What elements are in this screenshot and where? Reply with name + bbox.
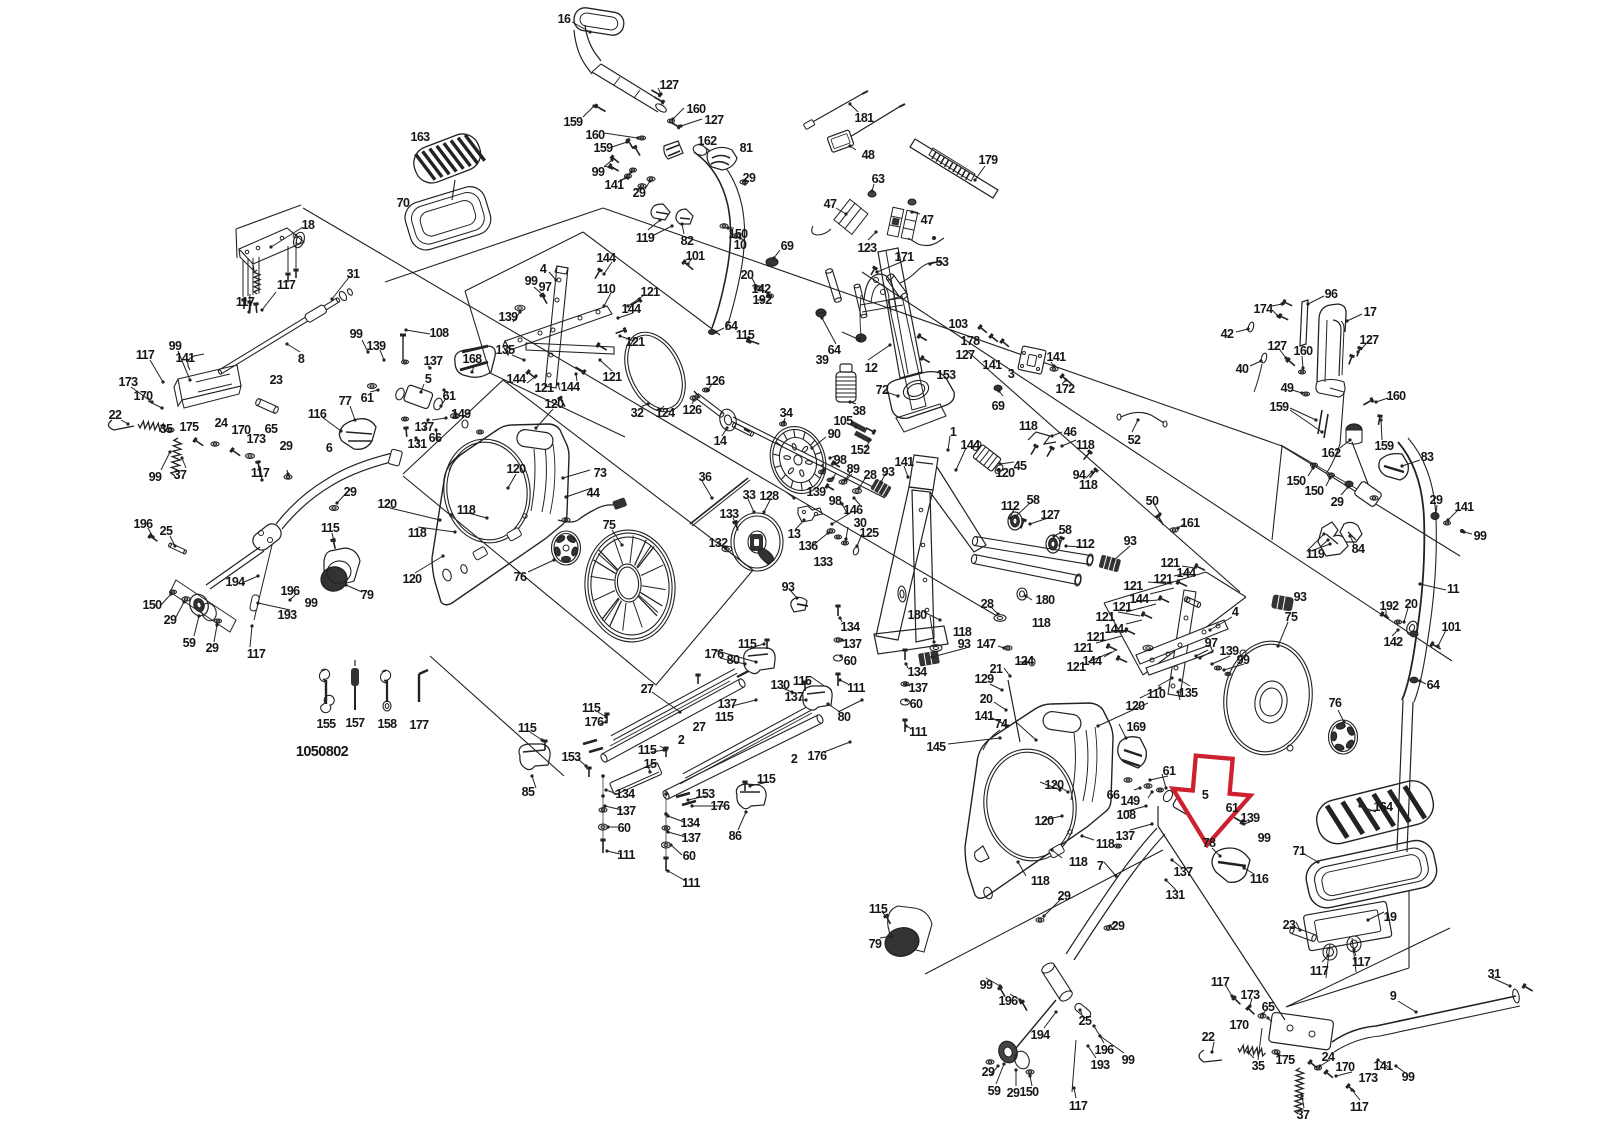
svg-text:115: 115 <box>321 521 340 535</box>
svg-text:120: 120 <box>1034 814 1054 828</box>
svg-text:115: 115 <box>638 743 657 757</box>
svg-text:39: 39 <box>816 353 829 367</box>
svg-text:137: 137 <box>1173 865 1193 879</box>
svg-text:127: 127 <box>659 78 679 92</box>
svg-text:141: 141 <box>982 358 1002 372</box>
svg-text:159: 159 <box>593 141 613 155</box>
svg-text:66: 66 <box>429 431 442 445</box>
svg-text:121: 121 <box>1073 641 1093 655</box>
svg-text:98: 98 <box>834 453 847 467</box>
svg-text:124: 124 <box>1014 654 1034 668</box>
svg-text:149: 149 <box>1120 794 1140 808</box>
svg-text:121: 121 <box>602 370 622 384</box>
svg-text:99: 99 <box>525 274 538 288</box>
svg-text:24: 24 <box>215 416 228 430</box>
svg-text:36: 36 <box>699 470 712 484</box>
svg-text:117: 117 <box>1352 955 1371 969</box>
svg-text:58: 58 <box>1059 523 1072 537</box>
svg-text:18: 18 <box>302 218 315 232</box>
svg-text:32: 32 <box>631 406 644 420</box>
svg-text:118: 118 <box>1031 874 1050 888</box>
svg-text:132: 132 <box>708 536 728 550</box>
svg-text:29: 29 <box>1112 919 1125 933</box>
svg-text:176: 176 <box>704 647 724 661</box>
svg-text:72: 72 <box>876 383 889 397</box>
svg-text:121: 121 <box>1066 660 1086 674</box>
svg-text:97: 97 <box>1205 636 1218 650</box>
svg-text:81: 81 <box>740 141 753 155</box>
svg-text:101: 101 <box>1441 620 1461 634</box>
svg-text:16: 16 <box>558 12 571 26</box>
svg-text:137: 137 <box>681 831 701 845</box>
svg-text:61: 61 <box>361 391 374 405</box>
svg-text:144: 144 <box>960 438 980 452</box>
svg-text:22: 22 <box>109 408 122 422</box>
svg-text:176: 176 <box>710 799 730 813</box>
svg-text:29: 29 <box>982 1065 995 1079</box>
svg-text:20: 20 <box>980 692 993 706</box>
svg-text:118: 118 <box>457 503 476 517</box>
svg-text:123: 123 <box>857 241 877 255</box>
svg-text:118: 118 <box>1079 478 1098 492</box>
svg-text:69: 69 <box>781 239 794 253</box>
svg-text:20: 20 <box>741 268 754 282</box>
svg-text:96: 96 <box>1325 287 1338 301</box>
svg-text:176: 176 <box>807 749 827 763</box>
svg-text:163: 163 <box>410 130 430 144</box>
svg-text:137: 137 <box>1115 829 1135 843</box>
svg-text:112: 112 <box>1076 537 1095 551</box>
svg-text:117: 117 <box>236 295 255 309</box>
svg-text:99: 99 <box>592 165 605 179</box>
svg-text:172: 172 <box>1055 382 1075 396</box>
svg-text:173: 173 <box>246 432 266 446</box>
svg-text:76: 76 <box>1329 696 1342 710</box>
svg-text:118: 118 <box>1076 438 1095 452</box>
svg-text:144: 144 <box>506 372 526 386</box>
svg-text:157: 157 <box>345 716 365 730</box>
svg-text:29: 29 <box>633 186 646 200</box>
svg-text:28: 28 <box>981 597 994 611</box>
svg-text:135: 135 <box>1178 686 1198 700</box>
svg-text:31: 31 <box>1488 967 1501 981</box>
svg-text:75: 75 <box>1285 610 1298 624</box>
svg-text:149: 149 <box>451 407 471 421</box>
svg-text:78: 78 <box>1203 836 1216 850</box>
svg-text:77: 77 <box>339 394 352 408</box>
svg-text:93: 93 <box>1294 590 1307 604</box>
svg-text:50: 50 <box>1146 494 1159 508</box>
svg-text:60: 60 <box>618 821 631 835</box>
svg-text:27: 27 <box>641 682 654 696</box>
svg-text:111: 111 <box>617 848 635 862</box>
svg-text:53: 53 <box>936 255 949 269</box>
svg-text:127: 127 <box>1359 333 1379 347</box>
svg-text:8: 8 <box>298 352 305 366</box>
svg-text:59: 59 <box>183 636 196 650</box>
svg-text:133: 133 <box>719 507 739 521</box>
svg-text:75: 75 <box>603 518 616 532</box>
svg-text:126: 126 <box>682 403 702 417</box>
svg-text:173: 173 <box>1358 1071 1378 1085</box>
svg-text:153: 153 <box>561 750 581 764</box>
svg-text:144: 144 <box>1176 566 1196 580</box>
svg-text:117: 117 <box>277 278 296 292</box>
svg-text:85: 85 <box>522 785 535 799</box>
svg-text:144: 144 <box>1104 622 1124 636</box>
svg-text:47: 47 <box>824 197 837 211</box>
svg-text:79: 79 <box>869 937 882 951</box>
svg-text:101: 101 <box>685 249 705 263</box>
svg-text:115: 115 <box>518 721 537 735</box>
svg-text:99: 99 <box>149 470 162 484</box>
svg-text:118: 118 <box>1096 837 1115 851</box>
svg-text:79: 79 <box>361 588 374 602</box>
svg-text:34: 34 <box>780 406 793 420</box>
svg-text:4: 4 <box>1232 605 1239 619</box>
svg-text:61: 61 <box>443 389 456 403</box>
svg-text:25: 25 <box>160 524 173 538</box>
svg-text:93: 93 <box>1124 534 1137 548</box>
svg-text:153: 153 <box>936 368 956 382</box>
svg-text:15: 15 <box>644 757 657 771</box>
svg-text:120: 120 <box>1125 699 1145 713</box>
svg-text:60: 60 <box>683 849 696 863</box>
svg-text:49: 49 <box>1281 381 1294 395</box>
svg-text:142: 142 <box>1383 635 1403 649</box>
svg-text:22: 22 <box>1202 1030 1215 1044</box>
svg-text:48: 48 <box>862 148 875 162</box>
svg-text:29: 29 <box>1331 495 1344 509</box>
svg-text:20: 20 <box>1405 597 1418 611</box>
svg-text:119: 119 <box>636 231 655 245</box>
svg-text:141: 141 <box>894 455 914 469</box>
svg-text:133: 133 <box>813 555 833 569</box>
svg-text:177: 177 <box>409 718 429 732</box>
svg-text:120: 120 <box>995 466 1015 480</box>
svg-text:194: 194 <box>1030 1028 1050 1042</box>
svg-text:99: 99 <box>305 596 318 610</box>
svg-text:60: 60 <box>910 697 923 711</box>
svg-text:117: 117 <box>1310 964 1329 978</box>
svg-text:23: 23 <box>270 373 283 387</box>
svg-text:170: 170 <box>1229 1018 1249 1032</box>
svg-text:121: 121 <box>625 335 645 349</box>
svg-text:137: 137 <box>842 637 862 651</box>
svg-text:120: 120 <box>1044 778 1064 792</box>
svg-text:179: 179 <box>978 153 998 167</box>
svg-text:129: 129 <box>974 672 994 686</box>
svg-text:141: 141 <box>1046 350 1066 364</box>
svg-text:121: 121 <box>1123 579 1143 593</box>
svg-text:86: 86 <box>729 829 742 843</box>
svg-text:126: 126 <box>705 374 725 388</box>
svg-text:5: 5 <box>425 372 432 386</box>
svg-text:45: 45 <box>1014 459 1027 473</box>
svg-text:108: 108 <box>429 326 449 340</box>
svg-text:99: 99 <box>1402 1070 1415 1084</box>
svg-text:170: 170 <box>133 389 153 403</box>
svg-text:35: 35 <box>1252 1059 1265 1073</box>
svg-text:180: 180 <box>1035 593 1055 607</box>
svg-text:116: 116 <box>308 407 327 421</box>
svg-text:196: 196 <box>1094 1043 1114 1057</box>
svg-text:83: 83 <box>1421 450 1434 464</box>
svg-text:141: 141 <box>1454 500 1474 514</box>
svg-text:61: 61 <box>1226 801 1239 815</box>
svg-text:119: 119 <box>1306 547 1325 561</box>
svg-text:120: 120 <box>377 497 397 511</box>
svg-text:64: 64 <box>828 343 841 357</box>
svg-text:127: 127 <box>1040 508 1060 522</box>
svg-text:115: 115 <box>736 328 755 342</box>
svg-text:164: 164 <box>1373 800 1393 814</box>
svg-text:105: 105 <box>833 414 853 428</box>
svg-text:176: 176 <box>584 715 604 729</box>
svg-text:25: 25 <box>1079 1014 1092 1028</box>
svg-text:144: 144 <box>560 380 580 394</box>
svg-text:131: 131 <box>407 437 427 451</box>
svg-text:124: 124 <box>655 406 675 420</box>
svg-text:159: 159 <box>563 115 583 129</box>
svg-text:23: 23 <box>1283 918 1296 932</box>
svg-text:158: 158 <box>377 717 397 731</box>
svg-text:141: 141 <box>175 351 195 365</box>
svg-text:28: 28 <box>864 468 877 482</box>
svg-text:2: 2 <box>791 752 798 766</box>
svg-text:110: 110 <box>1147 687 1166 701</box>
svg-text:29: 29 <box>206 641 219 655</box>
svg-text:144: 144 <box>621 302 641 316</box>
svg-text:111: 111 <box>682 876 700 890</box>
svg-text:120: 120 <box>506 462 526 476</box>
svg-text:93: 93 <box>882 465 895 479</box>
svg-text:31: 31 <box>347 267 360 281</box>
svg-text:90: 90 <box>828 427 841 441</box>
svg-text:58: 58 <box>1027 493 1040 507</box>
svg-text:192: 192 <box>752 293 772 307</box>
svg-text:9: 9 <box>1390 989 1397 1003</box>
svg-text:139: 139 <box>498 310 518 324</box>
svg-text:5: 5 <box>1202 788 1209 802</box>
svg-text:12: 12 <box>865 361 878 375</box>
svg-text:115: 115 <box>738 637 757 651</box>
svg-text:120: 120 <box>544 397 564 411</box>
svg-text:193: 193 <box>277 608 297 622</box>
svg-text:194: 194 <box>225 575 245 589</box>
svg-text:24: 24 <box>1322 1050 1335 1064</box>
svg-text:135: 135 <box>495 343 515 357</box>
svg-text:127: 127 <box>1267 339 1287 353</box>
svg-text:80: 80 <box>838 710 851 724</box>
svg-text:137: 137 <box>717 697 737 711</box>
svg-text:159: 159 <box>1269 400 1289 414</box>
svg-text:80: 80 <box>727 653 740 667</box>
svg-text:144: 144 <box>596 251 616 265</box>
svg-text:128: 128 <box>759 489 779 503</box>
svg-text:14: 14 <box>714 434 727 448</box>
svg-text:70: 70 <box>397 196 410 210</box>
svg-text:29: 29 <box>164 613 177 627</box>
svg-text:64: 64 <box>1427 678 1440 692</box>
svg-text:29: 29 <box>280 439 293 453</box>
svg-text:152: 152 <box>850 443 870 457</box>
svg-text:192: 192 <box>1379 599 1399 613</box>
svg-text:93: 93 <box>782 580 795 594</box>
svg-text:136: 136 <box>798 539 818 553</box>
svg-text:74: 74 <box>995 717 1008 731</box>
svg-text:35: 35 <box>160 422 173 436</box>
svg-text:6: 6 <box>326 441 333 455</box>
svg-text:117: 117 <box>251 466 270 480</box>
svg-text:193: 193 <box>1090 1058 1110 1072</box>
svg-text:7: 7 <box>1097 859 1104 873</box>
svg-text:115: 115 <box>793 674 812 688</box>
svg-text:2: 2 <box>678 733 685 747</box>
svg-text:61: 61 <box>1163 764 1176 778</box>
svg-text:115: 115 <box>715 710 734 724</box>
svg-text:29: 29 <box>743 171 756 185</box>
svg-text:40: 40 <box>1236 362 1249 376</box>
svg-text:99: 99 <box>1237 653 1250 667</box>
svg-text:115: 115 <box>869 902 888 916</box>
svg-text:118: 118 <box>1019 419 1038 433</box>
svg-text:127: 127 <box>704 113 724 127</box>
svg-text:118: 118 <box>1032 616 1051 630</box>
svg-text:160: 160 <box>1293 344 1313 358</box>
svg-text:175: 175 <box>1275 1053 1295 1067</box>
svg-text:99: 99 <box>350 327 363 341</box>
svg-text:137: 137 <box>908 681 928 695</box>
svg-text:10: 10 <box>734 238 747 252</box>
svg-text:146: 146 <box>843 503 863 517</box>
svg-text:141: 141 <box>974 709 994 723</box>
svg-text:141: 141 <box>1373 1059 1393 1073</box>
svg-text:99: 99 <box>1258 831 1271 845</box>
svg-text:98: 98 <box>829 494 842 508</box>
svg-text:171: 171 <box>894 250 914 264</box>
svg-text:73: 73 <box>594 466 607 480</box>
svg-text:11: 11 <box>1447 582 1460 596</box>
svg-text:180: 180 <box>907 608 927 622</box>
svg-text:178: 178 <box>960 334 980 348</box>
svg-text:117: 117 <box>1069 1099 1088 1113</box>
svg-text:112: 112 <box>1001 499 1020 513</box>
svg-text:38: 38 <box>853 404 866 418</box>
svg-text:117: 117 <box>247 647 266 661</box>
svg-text:137: 137 <box>616 804 636 818</box>
svg-text:29: 29 <box>1058 889 1071 903</box>
svg-text:155: 155 <box>316 717 336 731</box>
svg-text:33: 33 <box>743 488 756 502</box>
svg-text:4: 4 <box>540 262 547 276</box>
svg-text:160: 160 <box>1386 389 1406 403</box>
svg-text:65: 65 <box>265 422 278 436</box>
svg-text:125: 125 <box>859 526 879 540</box>
svg-text:170: 170 <box>1335 1060 1355 1074</box>
svg-text:84: 84 <box>1352 542 1365 556</box>
svg-text:69: 69 <box>992 399 1005 413</box>
svg-text:137: 137 <box>423 354 443 368</box>
svg-text:99: 99 <box>1122 1053 1135 1067</box>
svg-text:3: 3 <box>1008 367 1015 381</box>
svg-text:137: 137 <box>784 690 804 704</box>
svg-text:17: 17 <box>1364 305 1377 319</box>
svg-text:131: 131 <box>1165 888 1185 902</box>
svg-text:134: 134 <box>840 620 860 634</box>
svg-text:46: 46 <box>1064 425 1077 439</box>
svg-text:29: 29 <box>1007 1086 1020 1100</box>
svg-text:115: 115 <box>757 772 776 786</box>
svg-text:66: 66 <box>1107 788 1120 802</box>
svg-text:47: 47 <box>921 213 934 227</box>
svg-text:174: 174 <box>1253 302 1273 316</box>
svg-text:103: 103 <box>948 317 968 331</box>
svg-text:97: 97 <box>539 280 552 294</box>
svg-text:173: 173 <box>1240 988 1260 1002</box>
svg-text:63: 63 <box>872 172 885 186</box>
svg-text:161: 161 <box>1180 516 1200 530</box>
svg-text:127: 127 <box>955 348 975 362</box>
svg-text:29: 29 <box>344 485 357 499</box>
svg-text:93: 93 <box>958 637 971 651</box>
svg-text:89: 89 <box>847 462 860 476</box>
svg-text:169: 169 <box>1126 720 1146 734</box>
svg-text:19: 19 <box>1384 910 1397 924</box>
svg-text:162: 162 <box>1321 446 1341 460</box>
svg-text:99: 99 <box>980 978 993 992</box>
svg-text:111: 111 <box>847 681 865 695</box>
svg-text:134: 134 <box>680 816 700 830</box>
svg-text:134: 134 <box>615 787 635 801</box>
svg-text:118: 118 <box>1069 855 1088 869</box>
svg-text:168: 168 <box>462 352 482 366</box>
svg-text:145: 145 <box>926 740 946 754</box>
svg-text:110: 110 <box>597 282 616 296</box>
svg-text:150: 150 <box>1019 1085 1039 1099</box>
svg-text:117: 117 <box>136 348 155 362</box>
svg-text:121: 121 <box>1112 600 1132 614</box>
svg-text:150: 150 <box>142 598 162 612</box>
svg-text:116: 116 <box>1250 872 1269 886</box>
svg-text:111: 111 <box>909 725 927 739</box>
svg-text:60: 60 <box>844 654 857 668</box>
svg-text:108: 108 <box>1116 808 1136 822</box>
svg-text:29: 29 <box>1430 493 1443 507</box>
svg-text:160: 160 <box>585 128 605 142</box>
svg-text:139: 139 <box>366 339 386 353</box>
svg-text:162: 162 <box>697 134 717 148</box>
svg-text:82: 82 <box>681 234 694 248</box>
svg-text:159: 159 <box>1374 439 1394 453</box>
svg-text:196: 196 <box>998 994 1018 1008</box>
svg-text:118: 118 <box>408 526 427 540</box>
svg-text:1050802: 1050802 <box>296 744 349 760</box>
svg-text:65: 65 <box>1262 1000 1275 1014</box>
svg-text:121: 121 <box>640 285 660 299</box>
svg-text:115: 115 <box>582 701 601 715</box>
svg-text:150: 150 <box>1304 484 1324 498</box>
svg-text:37: 37 <box>174 468 187 482</box>
svg-text:139: 139 <box>1240 811 1260 825</box>
svg-text:175: 175 <box>179 420 199 434</box>
svg-text:181: 181 <box>854 111 874 125</box>
svg-text:139: 139 <box>806 485 826 499</box>
svg-text:141: 141 <box>604 178 624 192</box>
svg-text:121: 121 <box>1153 572 1173 586</box>
svg-text:196: 196 <box>133 517 153 531</box>
svg-text:76: 76 <box>514 570 527 584</box>
